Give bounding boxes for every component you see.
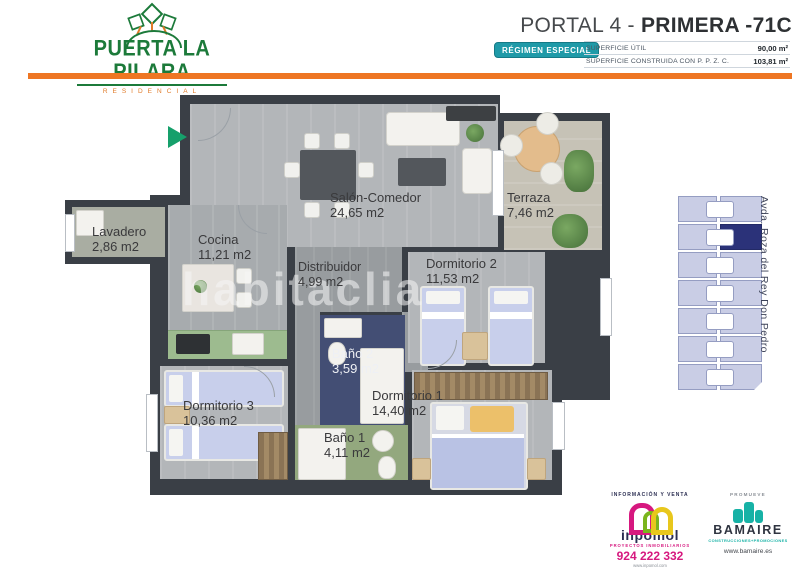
nightstand [462,332,488,360]
plant-icon [552,214,588,248]
bamaire-name: BAMAIRE [702,524,794,538]
surface-row-built: SUPERFICIE CONSTRUIDA CON P. P. Z. C. 10… [584,55,790,68]
kitchen-sink [232,333,264,355]
flyer-page: PUERTA LA PILARA RESIDENCIAL PORTAL 4 - … [0,0,800,568]
tree-logo-icon [120,6,184,40]
surface-table: SUPERFICIE ÚTIL 90,00 m² SUPERFICIE CONS… [584,41,790,68]
armchair [462,148,492,194]
unit-title-floor: PRIMERA -71C [641,14,792,37]
room-label-dormitorio-3: Dormitorio 310,36 m2 [183,398,254,429]
inpomol-heading: INFORMACIÓN Y VENTA [598,492,702,498]
room-label-lavadero: Lavadero2,86 m2 [92,224,146,255]
room-label-dormitorio-2: Dormitorio 211,53 m2 [426,256,497,287]
terrace-chair [536,112,559,135]
inpomol-tagline: PROYECTOS INMOBILIARIOS [598,543,702,548]
chair [358,162,374,178]
inpomol-website: www.inpomol.com [598,563,702,568]
plant-icon [564,150,594,192]
bamaire-logo-icon [732,501,764,523]
chair [284,162,300,178]
header-divider-bar [28,73,792,79]
plan-carve-bottom-right [562,400,614,495]
window [146,394,158,452]
bathroom-sink [324,318,362,338]
surface-label: SUPERFICIE CONSTRUIDA CON P. P. Z. C. [586,58,729,65]
unit-title-portal: PORTAL 4 - [520,14,641,37]
street-label: Avda. Roza del Rey Don Pedro [758,196,770,394]
plant-icon [466,124,484,142]
window [600,278,612,336]
room-label-salon: Salón-Comedor24,65 m2 [330,190,421,221]
wardrobe [258,432,288,480]
room-label-cocina: Cocina11,21 m2 [198,232,251,263]
tv-sideboard [446,106,496,121]
chair [304,133,320,149]
chair [304,202,320,218]
window [552,402,565,450]
yellow-pillow [470,406,514,432]
brand-subtitle: RESIDENCIAL [58,88,246,95]
plan-carve-terrace-top [500,95,612,113]
nightstand [527,458,546,480]
surface-value: 103,81 m² [753,57,788,66]
chair [334,133,350,149]
surface-row-util: SUPERFICIE ÚTIL 90,00 m² [584,42,790,55]
room-label-bano-1: Baño 14,11 m2 [324,430,370,461]
window [65,214,75,252]
blanket [432,434,524,488]
surface-value: 90,00 m² [758,44,788,53]
room-label-terraza: Terraza7,46 m2 [507,190,554,221]
bathroom-sink [372,430,394,452]
single-bed [488,286,534,366]
inpomol-logo-icon [627,501,673,528]
building-sitemap [678,196,762,394]
entrance-marker-icon [168,126,187,148]
inpomol-phone: 924 222 332 [598,550,702,563]
bamaire-heading: PROMUEVE [702,492,794,497]
room-label-dormitorio-1: Dormitorio 114,40 m2 [372,388,443,419]
room-label-distribuidor: Distribuidor4,99 m2 [298,260,361,290]
terrace-chair [540,162,563,185]
cooktop [176,334,210,354]
bamaire-website: www.bamaire.es [702,548,794,555]
terrace-door [492,150,504,216]
unit-title: PORTAL 4 - PRIMERA -71C [470,14,792,38]
hallway-left [295,312,320,428]
surface-label: SUPERFICIE ÚTIL [586,45,646,52]
bamaire-tagline: CONSTRUCCIONES+PROMOCIONES [702,538,794,543]
brand-logo: PUERTA LA PILARA RESIDENCIAL [58,6,246,95]
coffee-table [398,158,446,186]
sitemap-corner-cut [749,381,763,395]
bamaire-block: PROMUEVE BAMAIRE CONSTRUCCIONES+PROMOCIO… [702,492,794,555]
room-label-bano-2: Baño 23,59 m2 [332,346,379,377]
nightstand [412,458,431,480]
inpomol-block: INFORMACIÓN Y VENTA inpomol PROYECTOS IN… [598,492,702,568]
toilet [378,456,396,479]
